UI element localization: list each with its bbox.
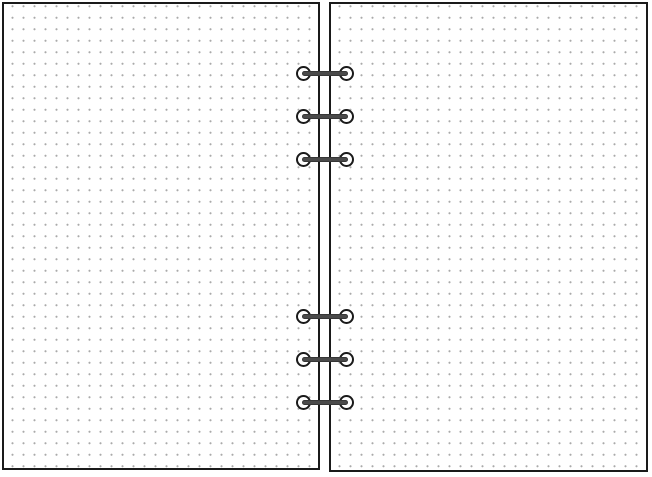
ring-bar-icon	[302, 314, 348, 319]
binder-ring	[296, 108, 354, 124]
binder-ring	[296, 351, 354, 367]
ring-bar-icon	[302, 400, 348, 405]
binder-ring	[296, 151, 354, 167]
ring-bar-icon	[302, 157, 348, 162]
ring-bar-icon	[302, 357, 348, 362]
binder-ring	[296, 394, 354, 410]
ring-bar-icon	[302, 114, 348, 119]
planner-mockup	[0, 0, 652, 477]
binder-ring	[296, 308, 354, 324]
binder-ring	[296, 65, 354, 81]
right-dot-grid-page	[329, 2, 648, 472]
ring-bar-icon	[302, 71, 348, 76]
left-dot-grid-page	[2, 2, 320, 470]
